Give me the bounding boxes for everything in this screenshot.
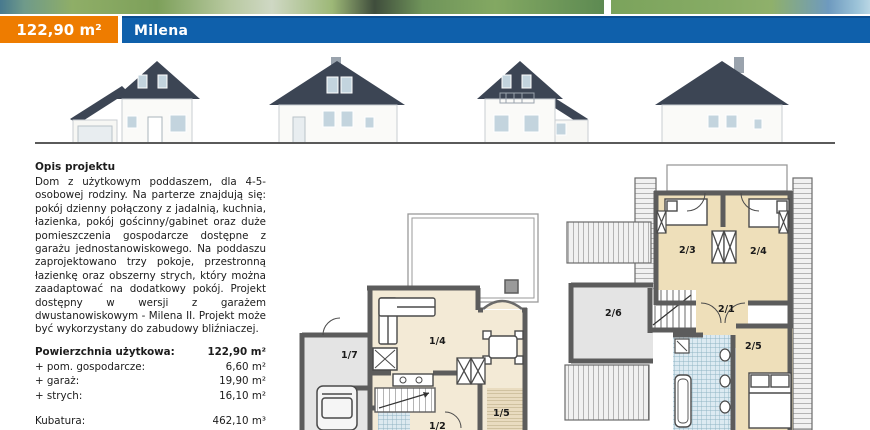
room-label-2-3: 2/3 (679, 245, 696, 256)
room-label-1-5: 1/5 (493, 408, 510, 419)
stat-row-garage: + garaż: 19,90 m² (35, 374, 266, 389)
elevation-front-drawing (70, 57, 206, 149)
description-body: Dom z użytkowym poddaszem, dla 4-5-osobo… (35, 176, 266, 337)
room-label-2-1: 2/1 (718, 304, 735, 315)
stat-row-utility: + pom. gospodarcze: 6,60 m² (35, 360, 266, 375)
elevations-ground-line (35, 142, 835, 144)
stat-row-usable-area: Powierzchnia użytkowa: 122,90 m² (35, 345, 266, 360)
project-title: Milena (122, 23, 188, 39)
area-label: 122,90 m² (16, 21, 101, 39)
floorplan-attic: 2/3 2/4 2/6 2/1 2/5 (553, 163, 845, 430)
title-bar: Milena (122, 16, 870, 43)
floorplan-ground: 1/7 1/4 1/2 1/5 (293, 208, 545, 430)
header-photo-right (611, 0, 870, 14)
elevation-side-left-drawing (265, 57, 413, 149)
elevation-back-drawing (460, 57, 595, 149)
brochure-page: 122,90 m² Milena (0, 0, 870, 430)
area-badge: 122,90 m² (0, 16, 118, 43)
elevation-side-right-drawing (650, 57, 795, 149)
header-photo-left (0, 0, 604, 14)
room-label-2-6: 2/6 (605, 308, 622, 319)
room-label-2-5: 2/5 (745, 341, 762, 352)
room-label-2-4: 2/4 (750, 246, 767, 257)
room-label-1-7: 1/7 (341, 350, 358, 361)
stat-row-attic: + strych: 16,10 m² (35, 389, 266, 404)
project-description: Opis projektu Dom z użytkowym poddaszem,… (35, 161, 266, 337)
room-label-1-4: 1/4 (429, 336, 446, 347)
room-label-1-2: 1/2 (429, 421, 446, 430)
stat-row-volume: Kubatura: 462,10 m³ (35, 414, 266, 429)
description-heading: Opis projektu (35, 161, 266, 173)
stats-table: Powierzchnia użytkowa: 122,90 m² + pom. … (35, 345, 266, 430)
